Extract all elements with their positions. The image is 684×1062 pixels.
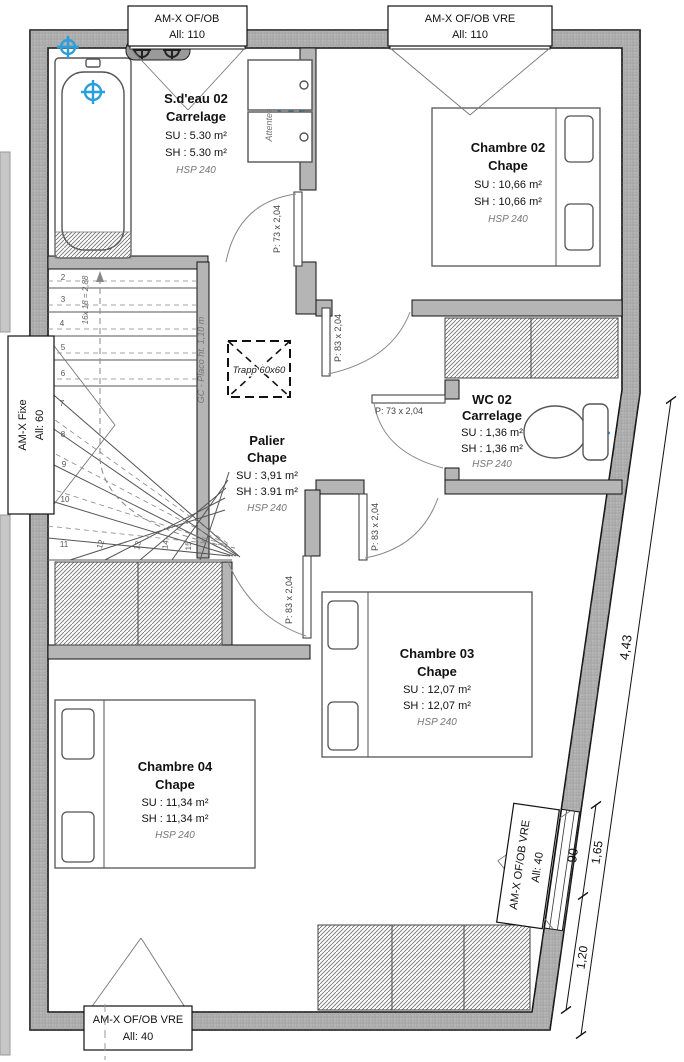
dim-window-width: 90 [564, 847, 581, 863]
room-hsp: HSP 240 [155, 830, 195, 841]
room-finish: Carrelage [166, 109, 226, 124]
room-hsp: HSP 240 [176, 165, 216, 176]
window-allege-label: All: 110 [452, 29, 488, 41]
window-allege-label: All: 110 [169, 29, 205, 41]
dim-total: 4,43 [616, 634, 634, 661]
door-size-label: P: 73 x 2,04 [375, 406, 423, 416]
step-number: 8 [61, 430, 66, 439]
step-number: 15 [184, 541, 193, 551]
door-wc: P: 73 x 2,04 [372, 395, 445, 468]
step-number: 5 [61, 343, 66, 352]
toilet [524, 404, 608, 460]
room-finish: Carrelage [462, 408, 522, 423]
room-finish: Chape [155, 777, 195, 792]
room-sh: SH : 12,07 m² [403, 700, 471, 712]
room-sh: SH : 11,34 m² [141, 813, 208, 825]
room-name: Chambre 02 [471, 140, 545, 155]
room-name: Palier [249, 433, 284, 448]
window-label: AM-X OF/OB [155, 13, 220, 25]
room-su: SU : 11,34 m² [141, 797, 208, 809]
trappe-hatch: Trapp 60x60 [228, 341, 290, 397]
door-size-label: P: 83 x 2,04 [370, 503, 380, 551]
room-su: SU : 3,91 m² [236, 470, 298, 482]
door-chambre-02: P: 83 x 2,04 [322, 308, 410, 376]
room-name: WC 02 [472, 392, 512, 407]
attentes-label: Attentes [264, 108, 274, 143]
room-sh: SH : 5.30 m² [165, 147, 227, 159]
room-finish: Chape [417, 664, 457, 679]
dim-seg1: 1,65 [588, 840, 605, 865]
walkline-arrow-icon [96, 271, 104, 282]
room-su: SU : 1,36 m² [461, 427, 523, 439]
step-number: 9 [62, 460, 67, 469]
step-number: 6 [61, 369, 66, 378]
step-number: 12 [95, 538, 106, 550]
step-number: 7 [60, 399, 65, 408]
room-sh: SH : 3.91 m² [236, 486, 298, 498]
room-name: Chambre 04 [138, 759, 213, 774]
window-top-right: AM-X OF/OB VRE All: 110 [388, 6, 552, 115]
room-name: S.d'eau 02 [164, 91, 228, 106]
room-label-wc-02: WC 02 Carrelage SU : 1,36 m² SH : 1,36 m… [461, 392, 523, 470]
room-su: SU : 10,66 m² [474, 179, 542, 191]
window-label: AM-X Fixe [17, 399, 29, 450]
staircase: 2 3 4 5 6 7 8 9 10 11 12 13 14 15 16x 18… [48, 271, 240, 560]
gc-placo-label: GC - Placo ht. 1,10 m [196, 316, 206, 403]
room-name: Chambre 03 [400, 646, 474, 661]
window-bottom: AM-X OF/OB VRE All: 40 [84, 938, 192, 1050]
room-hsp: HSP 240 [417, 717, 457, 728]
trappe-label: Trapp 60x60 [233, 365, 286, 376]
step-number: 11 [60, 540, 69, 549]
dim-seg2: 1,20 [573, 945, 590, 970]
floor-plan-drawing: 2 3 4 5 6 7 8 9 10 11 12 13 14 15 16x 18… [0, 0, 684, 1062]
room-hsp: HSP 240 [488, 214, 528, 225]
step-number: 14 [161, 539, 171, 549]
door-chambre-04: P: 83 x 2,04 [228, 556, 311, 638]
room-sh: SH : 1,36 m² [461, 443, 523, 455]
step-number: 3 [61, 295, 66, 304]
door-chambre-03: P: 83 x 2,04 [359, 494, 438, 560]
door-size-label: P: 83 x 2,04 [333, 314, 343, 362]
door-sdeau: P: 73 x 2,04 [226, 192, 302, 266]
room-label-palier: Palier Chape SU : 3,91 m² SH : 3.91 m² H… [236, 433, 298, 514]
door-size-label: P: 83 x 2,04 [284, 576, 294, 624]
window-label: AM-X OF/OB VRE [93, 1014, 183, 1026]
step-number: 10 [61, 495, 70, 504]
step-number: 4 [60, 319, 65, 328]
window-allege-label: All: 60 [34, 410, 46, 441]
room-finish: Chape [247, 450, 287, 465]
window-allege-label: All: 40 [123, 1031, 154, 1043]
room-su: SU : 12,07 m² [403, 684, 471, 696]
room-finish: Chape [488, 158, 528, 173]
stair-formula-label: 16x 18 = 2,88 [81, 275, 90, 324]
room-hsp: HSP 240 [472, 459, 512, 470]
room-label-sdeau: S.d'eau 02 Carrelage SU : 5.30 m² SH : 5… [164, 91, 228, 176]
room-su: SU : 5.30 m² [165, 130, 227, 142]
door-size-label: P: 73 x 2,04 [272, 205, 282, 253]
room-hsp: HSP 240 [247, 503, 287, 514]
floor-plan-page: 2 3 4 5 6 7 8 9 10 11 12 13 14 15 16x 18… [0, 0, 684, 1062]
window-label: AM-X OF/OB VRE [425, 13, 515, 25]
step-number: 2 [61, 273, 66, 282]
exterior-strips [0, 152, 10, 1055]
room-sh: SH : 10,66 m² [474, 196, 542, 208]
